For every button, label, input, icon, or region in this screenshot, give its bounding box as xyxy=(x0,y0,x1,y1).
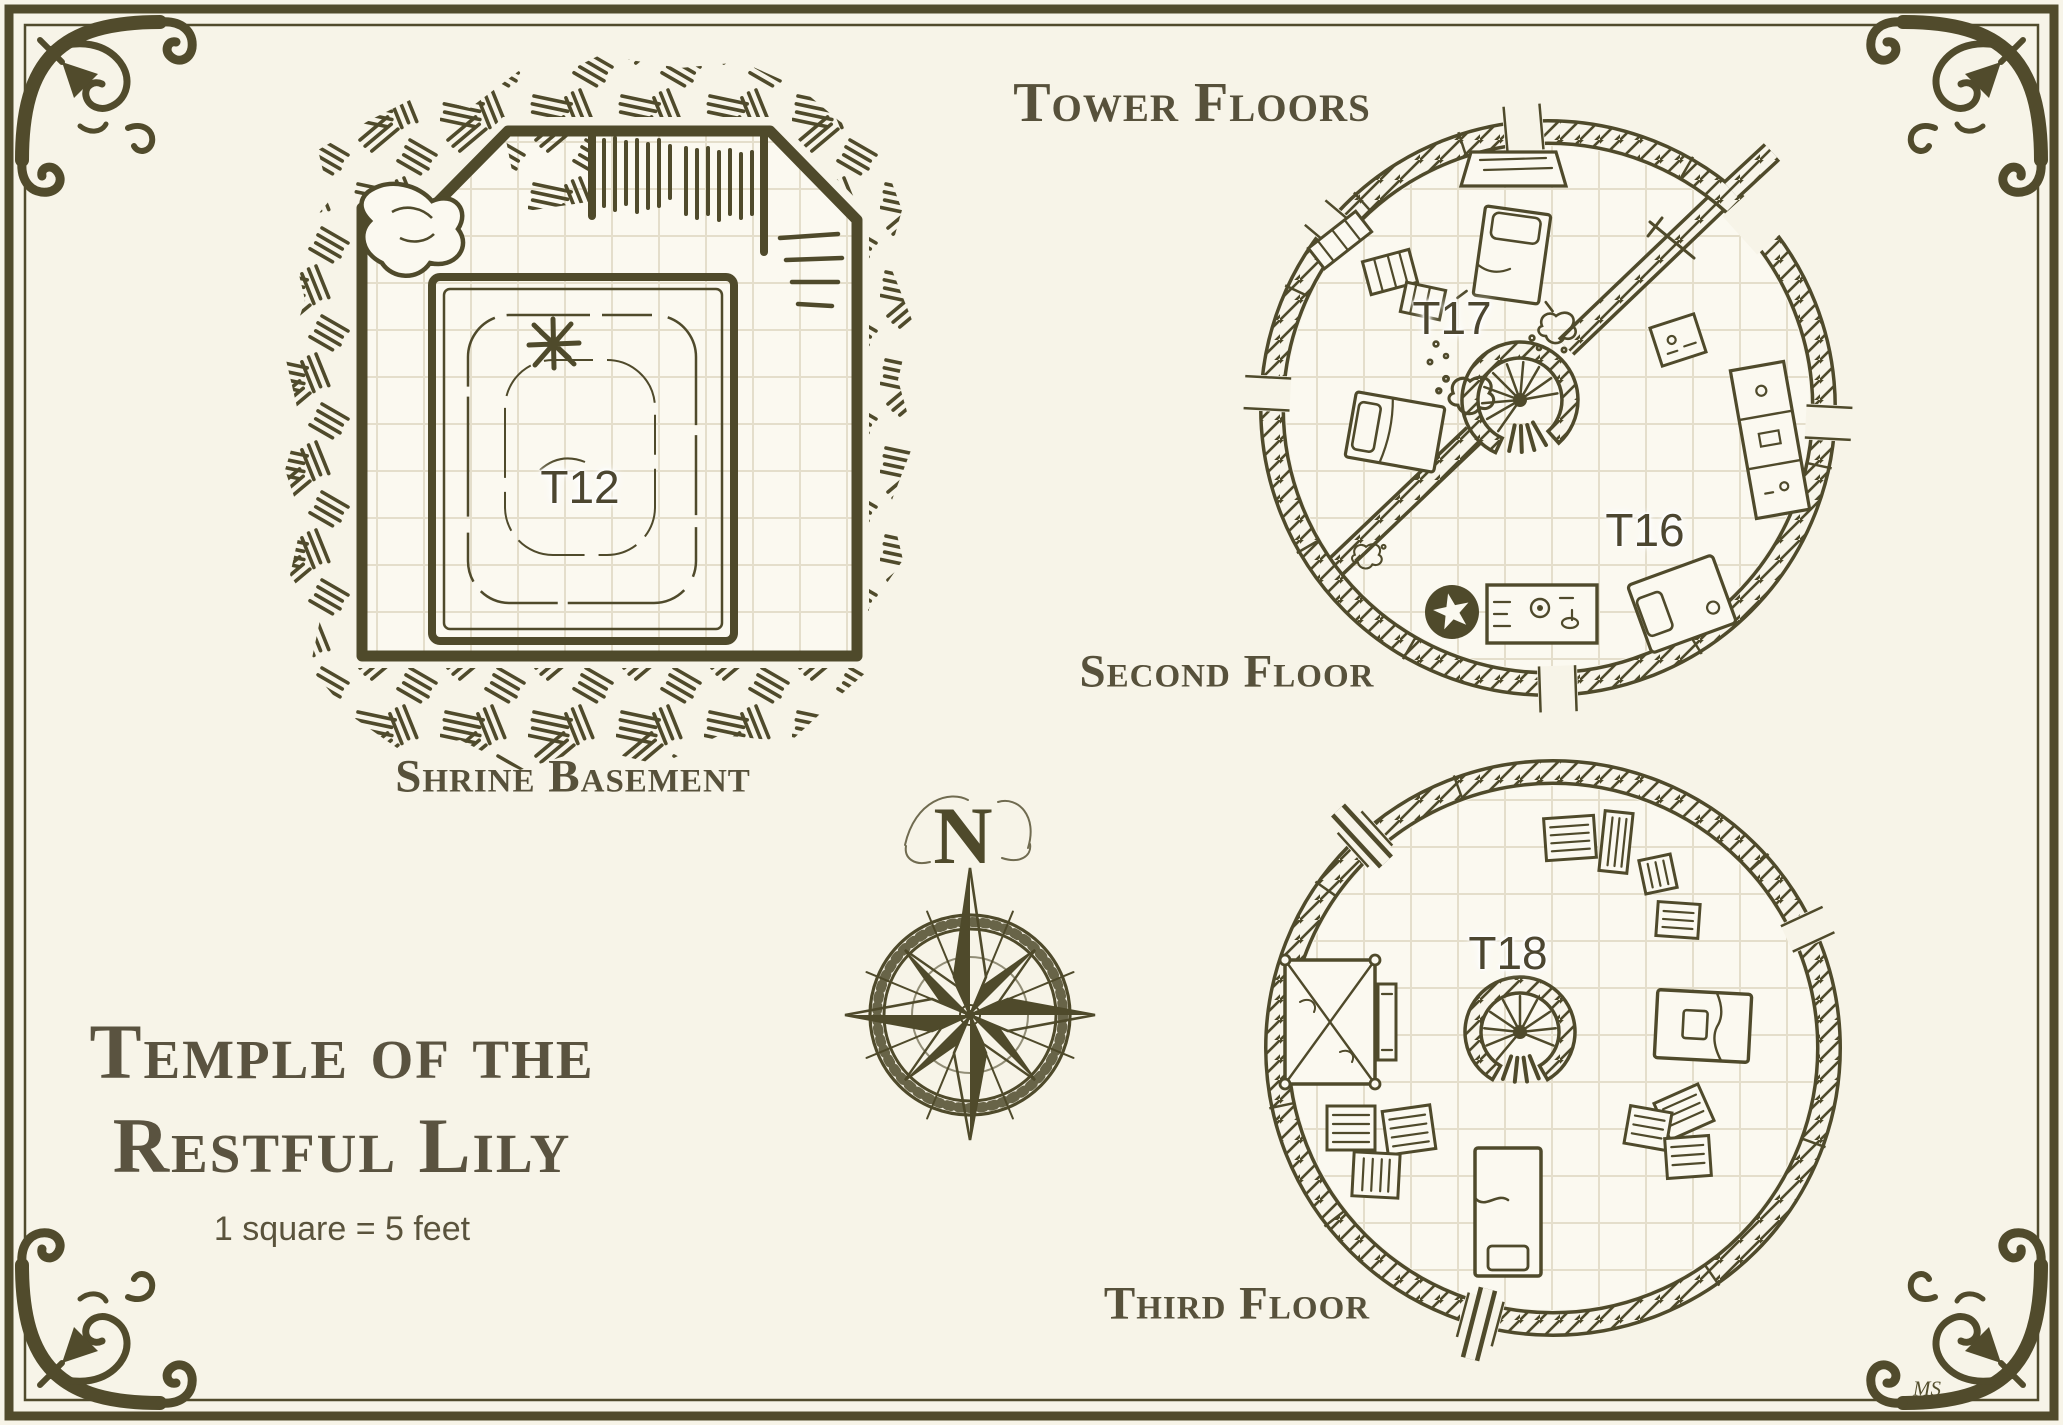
third-floor-caption: Third Floor xyxy=(1104,1281,1370,1328)
spiral-staircase xyxy=(1462,342,1578,453)
corner-flourish-top-right xyxy=(1871,22,2041,192)
tower-floors-title: Tower Floors xyxy=(1013,75,1371,131)
artist-signature: MS xyxy=(1913,1379,1941,1400)
corner-flourish-top-left xyxy=(22,22,192,192)
map-title-line1: Temple of the xyxy=(89,1013,594,1091)
corner-flourish-bottom-left xyxy=(22,1233,192,1403)
corner-flourish-bottom-right xyxy=(1871,1233,2041,1403)
compass-north-label: N xyxy=(933,795,992,877)
map-title-line2: Restful Lily xyxy=(113,1107,572,1185)
room-label-t17: T17 xyxy=(1412,295,1491,341)
map-sheet: { "palette": { "background": "#f7f4e8", … xyxy=(0,0,2063,1425)
third-floor-map xyxy=(1269,772,1835,1359)
shrine-basement-map xyxy=(285,55,915,770)
shrine-basement-caption: Shrine Basement xyxy=(395,754,751,801)
room-label-t18: T18 xyxy=(1468,930,1547,976)
second-floor-caption: Second Floor xyxy=(1080,649,1375,696)
room-label-t16: T16 xyxy=(1605,507,1684,553)
scale-note: 1 square = 5 feet xyxy=(214,1212,470,1246)
rubble-pile xyxy=(362,184,464,276)
room-label-t12: T12 xyxy=(540,464,619,510)
second-floor-map xyxy=(1243,103,1852,712)
